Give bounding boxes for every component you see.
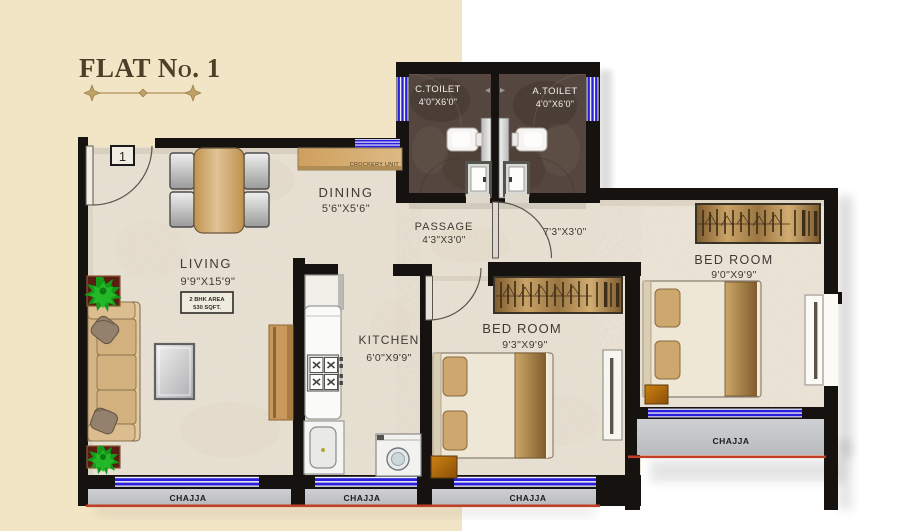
svg-text:6'0"X9'9": 6'0"X9'9" [366, 352, 411, 364]
svg-text:530 SQFT.: 530 SQFT. [193, 305, 221, 311]
svg-text:4'0"X6'0": 4'0"X6'0" [419, 97, 458, 107]
svg-text:BED ROOM: BED ROOM [482, 321, 562, 336]
svg-text:DINING: DINING [318, 185, 373, 200]
svg-text:C.TOILET: C.TOILET [415, 84, 461, 95]
svg-text:A.TOILET: A.TOILET [532, 86, 577, 97]
svg-text:4'0"X6'0": 4'0"X6'0" [536, 99, 575, 109]
svg-text:4'3"X3'0": 4'3"X3'0" [422, 235, 465, 246]
svg-text:5'6"X5'6": 5'6"X5'6" [322, 203, 370, 215]
svg-text:CHAJJA: CHAJJA [169, 493, 206, 503]
svg-text:9'0"X9'9": 9'0"X9'9" [711, 269, 756, 281]
svg-text:LIVING: LIVING [180, 256, 232, 271]
svg-text:1: 1 [119, 149, 126, 164]
svg-text:CHAJJA: CHAJJA [343, 493, 380, 503]
svg-text:9'3"X9'9": 9'3"X9'9" [502, 339, 547, 351]
svg-text:CROCKERY UNIT: CROCKERY UNIT [350, 162, 400, 168]
svg-text:PASSAGE: PASSAGE [415, 221, 474, 233]
svg-text:2 BHK AREA: 2 BHK AREA [189, 297, 225, 303]
svg-text:9'9"X15'9": 9'9"X15'9" [181, 276, 236, 288]
svg-text:KITCHEN: KITCHEN [358, 333, 419, 347]
svg-text:CHAJJA: CHAJJA [712, 436, 749, 446]
svg-text:7'3"X3'0": 7'3"X3'0" [543, 227, 586, 238]
svg-text:BED ROOM: BED ROOM [694, 253, 773, 267]
svg-text:CHAJJA: CHAJJA [509, 493, 546, 503]
